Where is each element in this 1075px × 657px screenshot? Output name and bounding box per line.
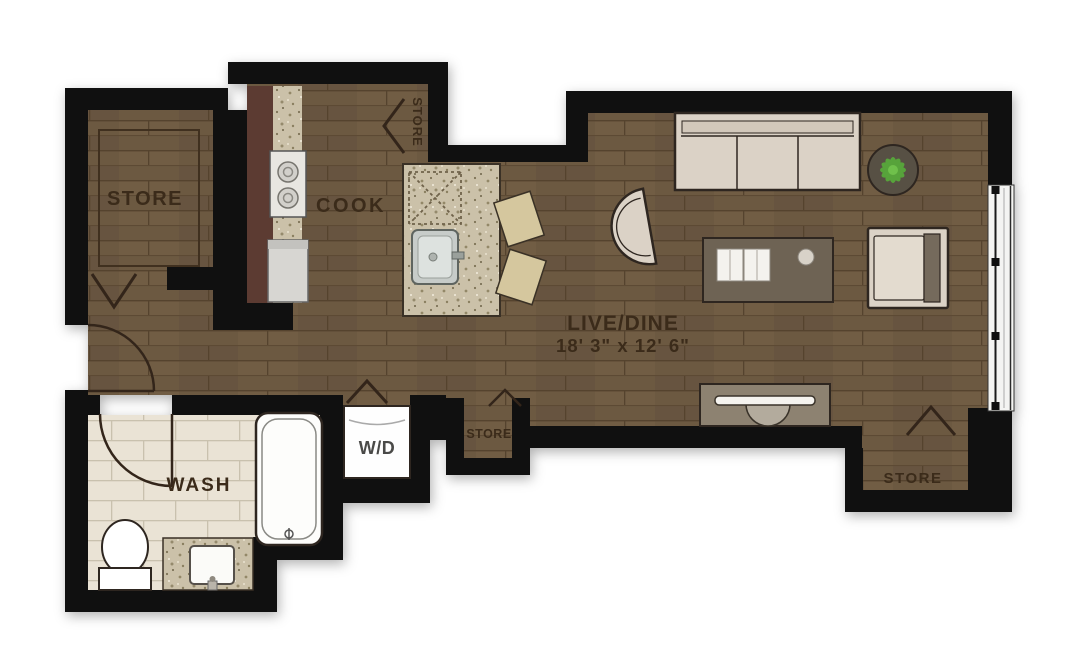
tv-screen	[715, 396, 815, 405]
live-dine-dimensions: 18' 3" x 12' 6"	[556, 335, 690, 356]
vanity-sink	[163, 538, 253, 590]
cook-label: COOK	[316, 195, 386, 217]
island-faucet	[452, 252, 464, 259]
floorplan-svg: STORE COOK LIVE/DINE 18' 3" x 12' 6" WAS…	[0, 0, 1075, 657]
store-corner-label: STORE	[884, 470, 943, 487]
vanity-faucet	[208, 581, 217, 590]
window	[988, 185, 1014, 411]
store-closet-kitchen-label: STORE	[410, 97, 425, 147]
table-decor	[798, 249, 814, 265]
floorplan-canvas: STORE COOK LIVE/DINE 18' 3" x 12' 6" WAS…	[0, 0, 1075, 657]
wash-label: WASH	[167, 475, 232, 496]
bathtub	[256, 413, 322, 545]
live-dine-label: LIVE/DINE	[567, 312, 679, 335]
island-sink	[412, 230, 464, 284]
kitchen-island	[403, 164, 500, 316]
store-hall-label: STORE	[466, 427, 511, 441]
sofa	[675, 113, 860, 190]
coffee-table	[703, 238, 833, 302]
stove	[270, 151, 306, 217]
store-room-label: STORE	[107, 188, 183, 210]
potted-plant	[868, 145, 918, 195]
tv-console	[700, 384, 830, 426]
refrigerator	[268, 240, 308, 302]
armchair	[868, 228, 948, 308]
toilet	[99, 520, 151, 590]
washer-dryer-label: W/D	[359, 438, 396, 458]
